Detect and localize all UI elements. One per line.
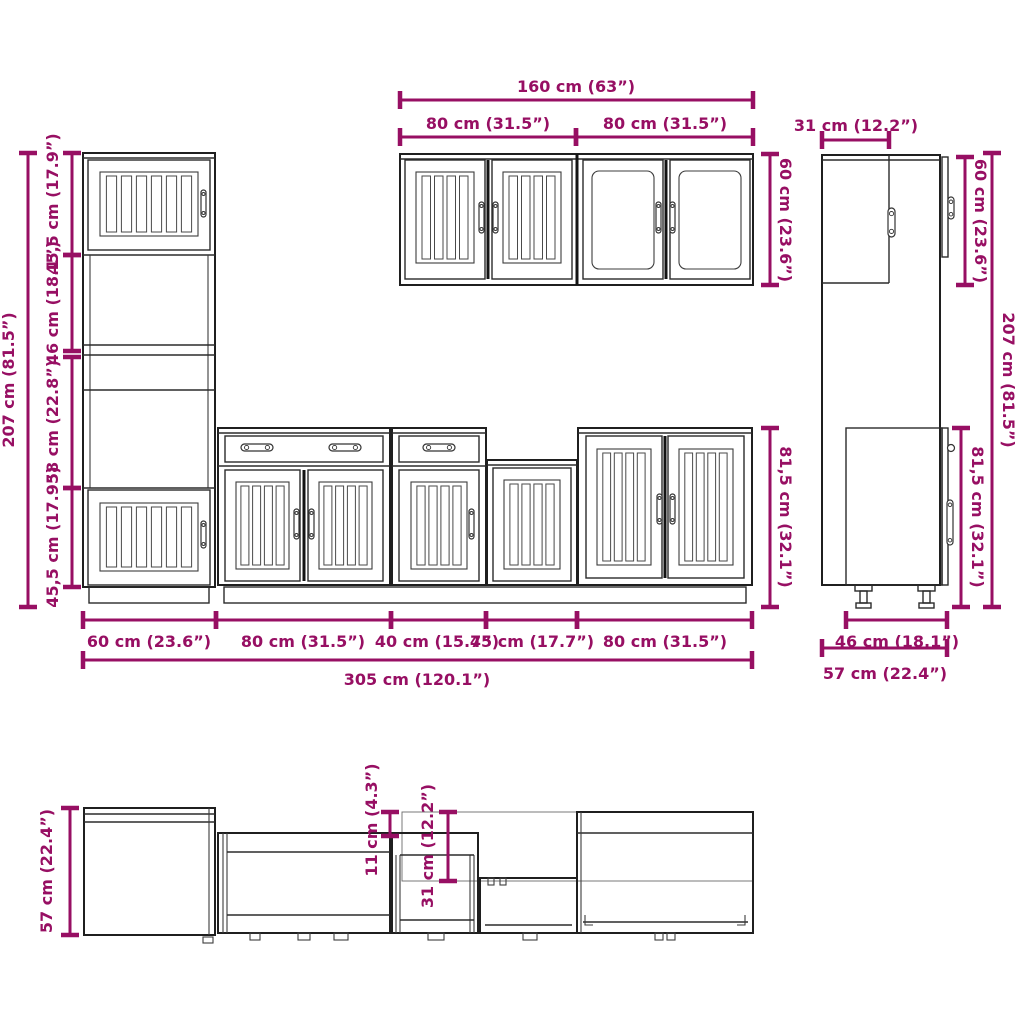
dim-height-207-left-label: 207 cm (81.5”) xyxy=(0,312,18,447)
dim-bottom-80b: 80 cm (31.5”) xyxy=(577,611,752,651)
dim-plan-57: 57 cm (22.4”) xyxy=(37,808,79,935)
door-handle xyxy=(309,509,314,539)
dim-sect-455-bottom: 45,5 cm (17.9”) xyxy=(43,466,81,607)
base-cabinet-45 xyxy=(487,460,577,585)
dim-height-60-wall-label: 60 cm (23.6”) xyxy=(776,158,795,282)
diagram-canvas: 160 cm (63”)80 cm (31.5”)80 cm (31.5”)31… xyxy=(0,0,1024,1024)
dim-width-80-right: 80 cm (31.5”) xyxy=(576,114,753,146)
door-slats xyxy=(422,176,468,259)
dim-side-60: 60 cm (23.6”) xyxy=(956,157,990,285)
door-slats xyxy=(106,176,191,232)
base-plinth xyxy=(224,587,746,603)
dim-plan-11-label: 11 cm (4.3”) xyxy=(362,763,381,876)
door-slats xyxy=(106,507,191,567)
dim-plan-57-label: 57 cm (22.4”) xyxy=(37,809,56,933)
dim-bottom-80a-label: 80 cm (31.5”) xyxy=(241,632,365,651)
door-handle xyxy=(657,494,662,524)
door-slats xyxy=(510,484,554,565)
dim-width-80-left: 80 cm (31.5”) xyxy=(400,114,576,146)
door-handle xyxy=(201,190,206,217)
dim-height-815-mid: 81,5 cm (32.1”) xyxy=(761,428,795,607)
door-handle xyxy=(888,208,895,237)
door-handle xyxy=(479,202,484,233)
door-slats xyxy=(603,453,645,561)
door-handle xyxy=(947,500,953,545)
foot-tab xyxy=(667,933,675,940)
foot-tab xyxy=(655,933,663,940)
dim-side-207-label: 207 cm (81.5”) xyxy=(999,312,1018,447)
dim-side-depth-31-label: 31 cm (12.2”) xyxy=(794,116,918,135)
dim-width-160: 160 cm (63”) xyxy=(400,77,753,109)
dim-bottom-80a: 80 cm (31.5”) xyxy=(216,611,391,651)
cabinet-feet xyxy=(855,585,935,608)
dim-width-80-right-label: 80 cm (31.5”) xyxy=(603,114,727,133)
door-edge xyxy=(942,157,948,257)
drawer-handle xyxy=(423,444,455,451)
dim-plan-31-label: 31 cm (12.2”) xyxy=(418,784,437,908)
door-slats-layer xyxy=(106,176,727,567)
door-slats xyxy=(685,453,727,561)
dim-plan-31: 31 cm (12.2”) xyxy=(418,784,457,908)
dim-sect-58-label: 58 cm (22.8”) xyxy=(43,360,62,484)
door-slats xyxy=(324,486,367,565)
dim-side-60-label: 60 cm (23.6”) xyxy=(971,159,990,283)
door-handle xyxy=(656,202,661,233)
dim-width-160-label: 160 cm (63”) xyxy=(517,77,635,96)
dim-sect-46-label: 46 cm (18.1”) xyxy=(43,241,62,365)
wall-cabinets xyxy=(400,154,753,285)
dim-side-46: 46 cm (18.1”) xyxy=(835,611,959,651)
tall-cabinet xyxy=(83,153,215,603)
foot-tab xyxy=(203,937,213,943)
corner-bracket xyxy=(737,915,745,925)
dim-side-depth-31: 31 cm (12.2”) xyxy=(794,116,918,149)
door-handle xyxy=(670,494,675,524)
door-handle xyxy=(948,197,954,219)
glass-panel xyxy=(679,171,741,269)
dim-side-815: 81,5 cm (32.1”) xyxy=(952,428,987,607)
dim-width-80-left-label: 80 cm (31.5”) xyxy=(426,114,550,133)
foot-tab xyxy=(523,933,537,940)
tall-cabinet-plinth xyxy=(89,587,209,603)
door-slats xyxy=(241,486,284,565)
door-slats xyxy=(509,176,555,259)
front-view xyxy=(83,153,753,603)
dim-height-815-mid-label: 81,5 cm (32.1”) xyxy=(776,446,795,587)
dim-bottom-60: 60 cm (23.6”) xyxy=(83,611,216,651)
drawer-handle xyxy=(329,444,361,451)
corner-bracket xyxy=(585,915,593,925)
dim-bottom-60-label: 60 cm (23.6”) xyxy=(87,632,211,651)
door-handle xyxy=(201,521,206,548)
clip xyxy=(488,878,494,885)
drawer-handle xyxy=(241,444,273,451)
dim-height-207-left: 207 cm (81.5”) xyxy=(0,153,37,607)
dim-sect-455-bottom-label: 45,5 cm (17.9”) xyxy=(43,466,62,607)
kitchen-cabinet-dimension-diagram: 160 cm (63”)80 cm (31.5”)80 cm (31.5”)31… xyxy=(0,0,1024,1024)
door-handle xyxy=(469,509,474,539)
dim-total-305: 305 cm (120.1”) xyxy=(83,651,752,689)
foot-tab xyxy=(334,933,348,940)
drawer-handle-side xyxy=(948,445,955,452)
dim-bottom-80b-label: 80 cm (31.5”) xyxy=(603,632,727,651)
dim-sect-46: 46 cm (18.1”) xyxy=(43,241,81,365)
foot-tab xyxy=(250,933,260,940)
clip xyxy=(500,878,506,885)
dim-side-57-label: 57 cm (22.4”) xyxy=(823,664,947,683)
dim-plan-11: 11 cm (4.3”) xyxy=(362,763,399,876)
dim-side-815-label: 81,5 cm (32.1”) xyxy=(968,446,987,587)
dim-total-305-label: 305 cm (120.1”) xyxy=(344,670,490,689)
foot-tab xyxy=(428,933,444,940)
door-slats xyxy=(417,486,461,565)
dim-height-60-wall: 60 cm (23.6”) xyxy=(761,154,795,285)
glass-panel xyxy=(592,171,654,269)
door-handle xyxy=(493,202,498,233)
dim-bottom-45-label: 45 cm (17.7”) xyxy=(470,632,594,651)
foot-tab xyxy=(298,933,310,940)
door-handle xyxy=(294,509,299,539)
door-handle xyxy=(670,202,675,233)
